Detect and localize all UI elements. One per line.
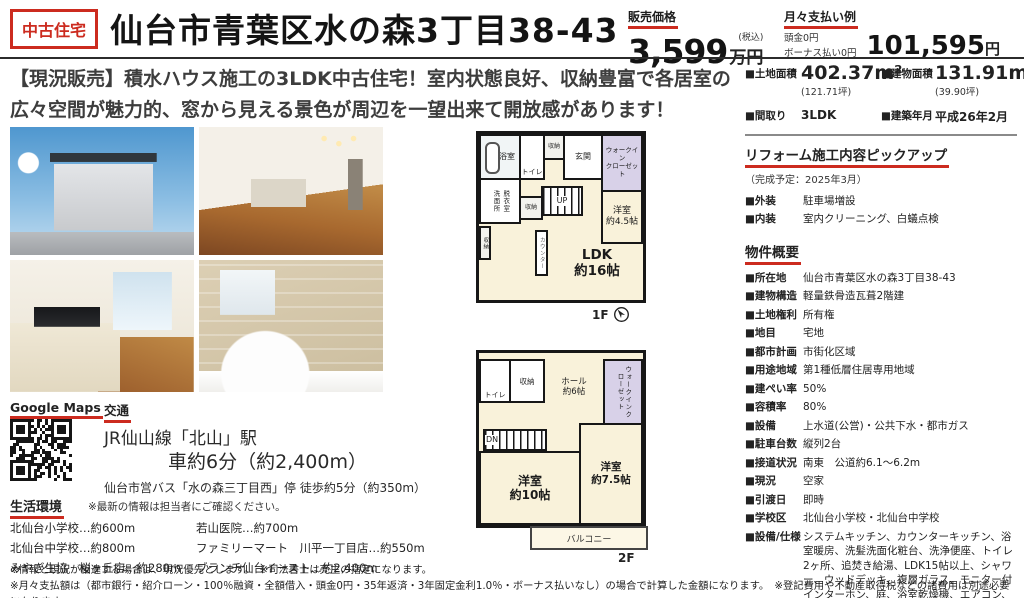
room-western-7-5: 洋室 約7.5帖 (579, 423, 643, 525)
washroom-label: 洗面所 (491, 190, 499, 213)
overview-row: ■学校区北仙台小学校・北仙台中学校 (745, 511, 1017, 525)
room-toilet-1f: トイレ (519, 134, 545, 180)
dressing-label: 脱衣室 (501, 190, 509, 213)
balcony: バルコニー (530, 526, 648, 550)
floorplan-2f: トイレ 収納 ホール 約6帖 ウォークインクローゼット DN 洋室 約10帖 洋… (476, 350, 646, 528)
overview-row: ■建物構造軽量鉄骨造瓦葺2階建 (745, 289, 1017, 303)
built-date-value: 平成26年2月 (935, 104, 1017, 125)
room-storage-b: 収納 (519, 196, 543, 220)
monthly-payment-label: 月々支払い例 (784, 8, 858, 29)
reform-row: ■外装駐車場増設 (745, 194, 1017, 208)
stairs-up: UP (541, 186, 583, 216)
access-bus: 仙台市営バス「水の森三丁目西」停 徒歩約5分（約350m） (104, 479, 426, 496)
overview-row: ■容積率80% (745, 400, 1017, 414)
layout-label: ■間取り (745, 104, 801, 123)
list-item: 北仙台中学校…約800m (10, 539, 192, 559)
layout-value: 3LDK (801, 104, 881, 122)
catch-copy: 【現況販売】積水ハウス施工の3LDK中古住宅！室内状態良好、収納豊富で各居室の広… (10, 64, 732, 126)
price-label: 販売価格 (628, 8, 678, 29)
stairs-down: DN (483, 429, 547, 451)
photo-bathroom (199, 260, 383, 392)
overview-row: ■現況空家 (745, 474, 1017, 488)
qr-code (10, 419, 72, 481)
list-item: 若山医院…約700m (196, 519, 436, 539)
overview-section: 物件概要 ■所在地仙台市青葉区水の森3丁目38-43 ■建物構造軽量鉄骨造瓦葺2… (745, 241, 1017, 598)
floorplan-1f-label: 1F (592, 306, 630, 323)
overview-row: ■設備上水道(公営)・公共下水・都市ガス (745, 419, 1017, 433)
floorplan-1f: 浴室 トイレ 収納 玄関 ウォークイン クローゼット 洋室 約4.5帖 洗面所 … (476, 131, 646, 303)
photo-exterior (10, 127, 194, 255)
room-bath: 浴室 (479, 134, 521, 180)
section-divider (745, 134, 1017, 136)
photo-grid (10, 127, 383, 392)
reform-section: リフォーム施工内容ピックアップ （完成予定：2025年3月） ■外装駐車場増設 … (745, 144, 1017, 227)
list-item: 北仙台小学校…約600m (10, 519, 192, 539)
overview-row: ■土地権利所有権 (745, 308, 1017, 322)
building-area-value: 131.91m² (39.90坪) (935, 62, 1017, 98)
room-storage-2f: 収納 (509, 359, 545, 403)
room-western-10: 洋室 約10帖 (479, 451, 581, 525)
price-section: 販売価格 3,599 (税込) 万円 (628, 6, 763, 71)
price-tax-note: (税込) (729, 30, 763, 43)
page-title: 仙台市青葉区水の森3丁目38-43 (110, 4, 619, 52)
spec-grid: ■土地面積 402.37m² (121.71坪) ■建物面積 131.91m² … (745, 62, 1017, 125)
overview-row: ■引渡日即時 (745, 493, 1017, 507)
overview-row: ■用途地域第1種低層住居専用地域 (745, 363, 1017, 377)
footnote-line: ※情報と現況が相違する場合は、現況優先とします。 ※司法書士は売主の指定になりま… (10, 563, 1018, 579)
footnote-line: ※月々支払額は（都市銀行・紹介ローン・100％融資・全額借入・頭金0円・35年返… (10, 579, 1018, 598)
room-walk-in-closet-2f: ウォークインクローゼット (603, 359, 643, 425)
room-storage-c: 収納 (479, 226, 491, 260)
environment-section-label: 生活環境 (10, 496, 64, 519)
right-column: ■土地面積 402.37m² (121.71坪) ■建物面積 131.91m² … (745, 62, 1017, 598)
overview-row: ■駐車台数縦列2台 (745, 437, 1017, 451)
reform-note: （完成予定：2025年3月） (745, 171, 1017, 186)
room-western-4-5: 洋室 約4.5帖 (601, 190, 643, 244)
overview-row: ■都市計画市街化区域 (745, 345, 1017, 359)
monthly-down-payment: 頭金0円 (784, 33, 819, 44)
access-section-label: 交通 (104, 400, 131, 423)
access-station: JR仙山線「北山」駅 (104, 424, 257, 449)
room-toilet-2f: トイレ (479, 359, 511, 403)
photo-kitchen (10, 260, 194, 392)
overview-row: ■地目宅地 (745, 326, 1017, 340)
footnotes: ※情報と現況が相違する場合は、現況優先とします。 ※司法書士は売主の指定になりま… (10, 563, 1018, 598)
room-hall: ホール 約6帖 (545, 367, 603, 407)
overview-row: ■建ぺい率50% (745, 382, 1017, 396)
bathtub-icon (485, 142, 500, 174)
header-divider (0, 57, 1024, 59)
room-storage-a: 収納 (543, 134, 565, 160)
environment-note: ※最新の情報は担当者にご確認ください。 (88, 499, 286, 514)
kitchen-counter: カウンター (535, 230, 548, 276)
property-flyer: 中古住宅 仙台市青葉区水の森3丁目38-43 販売価格 3,599 (税込) 万… (0, 0, 1024, 598)
google-maps-label: Google Maps (10, 400, 103, 419)
monthly-unit: 円 (985, 40, 1000, 58)
property-type-badge: 中古住宅 (10, 9, 98, 49)
monthly-payment-section: 月々支払い例 頭金0円 ボーナス払い0円 101,595円 (784, 6, 1000, 61)
overview-row: ■接道状況南東 公道約6.1～6.2m (745, 456, 1017, 470)
compass-north-icon (613, 306, 630, 323)
photo-living-room (199, 127, 383, 255)
room-ldk: LDK 約16帖 (557, 238, 637, 288)
land-area-value: 402.37m² (121.71坪) (801, 62, 881, 98)
room-entrance: 玄関 (563, 134, 603, 180)
built-date-label: ■建築年月 (881, 104, 935, 123)
list-item: ファミリーマート 川平一丁目店…約550m (196, 539, 436, 559)
room-walk-in-closet-1f: ウォークイン クローゼット (601, 134, 643, 192)
room-washroom: 洗面所 脱衣室 (479, 178, 521, 224)
overview-title: 物件概要 (745, 241, 801, 265)
reform-row: ■内装室内クリーニング、白蟻点検 (745, 212, 1017, 226)
reform-title: リフォーム施工内容ピックアップ (745, 144, 949, 168)
land-area-label: ■土地面積 (745, 62, 801, 81)
overview-row: ■所在地仙台市青葉区水の森3丁目38-43 (745, 271, 1017, 285)
building-area-label: ■建物面積 (881, 62, 935, 81)
access-car-time: 車約6分（約2,400m） (168, 447, 367, 474)
